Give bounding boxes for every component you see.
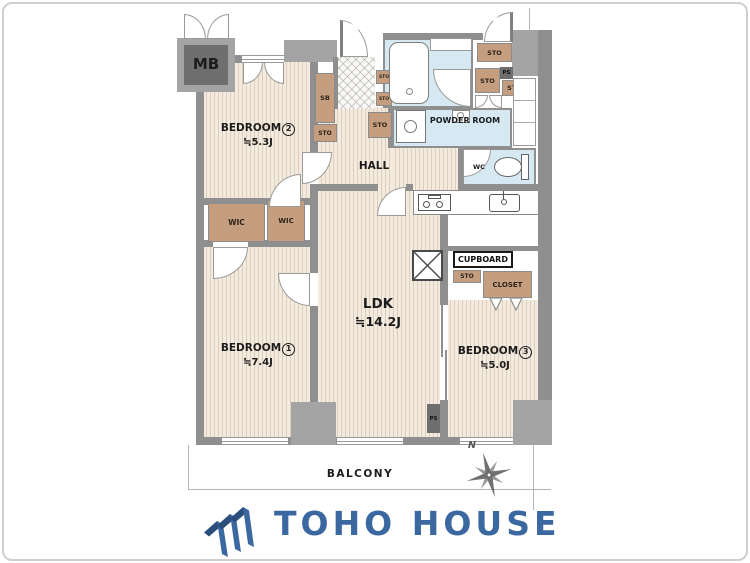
sb-label: SB bbox=[320, 94, 330, 102]
room-number: 1 bbox=[282, 343, 295, 356]
ps-label: PS bbox=[430, 416, 438, 422]
sto-label: STO bbox=[373, 121, 388, 129]
hall-label: HALL bbox=[346, 160, 402, 174]
wall bbox=[318, 184, 378, 191]
closet: CLOSET bbox=[483, 271, 532, 298]
room-number: 3 bbox=[519, 346, 532, 359]
toho-house-logo-icon bbox=[203, 499, 267, 559]
storage-box: STO bbox=[475, 68, 500, 93]
storage-box: STO bbox=[453, 270, 481, 283]
sto-label: STO bbox=[318, 130, 332, 137]
burner-icon bbox=[423, 201, 430, 208]
balcony-label: BALCONY bbox=[300, 468, 420, 482]
wall bbox=[284, 40, 337, 62]
mb-label: MB bbox=[184, 55, 228, 75]
sto-label: STO bbox=[460, 273, 474, 280]
washer-drum-icon bbox=[404, 120, 417, 133]
window bbox=[337, 437, 403, 445]
balcony-line bbox=[188, 445, 189, 489]
pillar bbox=[291, 402, 336, 445]
wic-box: WIC bbox=[208, 203, 265, 242]
folding-door-icon bbox=[489, 297, 503, 311]
folding-door-icon bbox=[509, 297, 523, 311]
shelf-line bbox=[514, 122, 535, 123]
entrance-door-arc bbox=[484, 12, 513, 42]
ldk-name: LDK bbox=[330, 296, 426, 314]
faucet-stem bbox=[503, 191, 504, 199]
sto-label: STO bbox=[379, 75, 389, 80]
wall bbox=[458, 148, 462, 184]
mb-door-arc bbox=[184, 14, 206, 39]
ldk-label: LDK ≒14.2J bbox=[330, 296, 426, 330]
wall bbox=[406, 184, 413, 191]
entrance-tile bbox=[337, 57, 375, 109]
storage-box: STO bbox=[313, 124, 337, 142]
boundary-line bbox=[529, 8, 530, 32]
toilet-icon bbox=[494, 157, 522, 177]
floorplan-canvas: MB WIC WIC SB STO STO STO STO STO STO ST… bbox=[0, 0, 750, 563]
powder-room-label: POWDER ROOM bbox=[428, 116, 502, 126]
faucet-icon bbox=[501, 199, 507, 205]
ps-label: PS bbox=[503, 70, 511, 76]
cupboard: CUPBOARD bbox=[453, 251, 513, 268]
closet-label: CLOSET bbox=[493, 281, 523, 289]
powder-door-arc bbox=[489, 95, 502, 108]
shoe-box: SB bbox=[315, 73, 335, 123]
room-number: 2 bbox=[282, 123, 295, 136]
toilet-tank-icon bbox=[521, 154, 529, 180]
pillar bbox=[513, 400, 552, 445]
sto-label: STO bbox=[480, 77, 495, 85]
wic-label: WIC bbox=[228, 218, 245, 227]
bathtub-drain-icon bbox=[406, 88, 413, 95]
linen-cabinet-icon bbox=[513, 78, 536, 146]
bedroom1-name: BEDROOM1 bbox=[206, 342, 310, 356]
pipe-space: PS bbox=[427, 404, 440, 433]
bedroom2-size: ≒5.3J bbox=[206, 136, 310, 149]
shaft-x-icon bbox=[412, 250, 443, 281]
mb-door-arc bbox=[207, 14, 229, 39]
powder-door-arc bbox=[475, 95, 488, 108]
wic-label: WIC bbox=[278, 217, 293, 225]
door-opening bbox=[310, 273, 318, 306]
wall bbox=[196, 55, 204, 443]
wc-label: WC bbox=[468, 163, 490, 171]
sto-label: STO bbox=[379, 97, 389, 102]
entrance-door-arc bbox=[340, 20, 368, 57]
wall bbox=[310, 184, 318, 198]
sto-label: STO bbox=[487, 49, 502, 57]
bedroom3-size: ≒5.0J bbox=[443, 359, 547, 372]
window bbox=[222, 437, 288, 445]
cupboard-label: CUPBOARD bbox=[458, 255, 508, 264]
bedroom3-name: BEDROOM3 bbox=[443, 345, 547, 359]
bedroom2-label: BEDROOM2 ≒5.3J bbox=[206, 122, 310, 149]
hall-floor-lower bbox=[392, 148, 462, 190]
wall bbox=[538, 30, 552, 443]
balcony-line bbox=[533, 445, 534, 510]
toho-house-logo-text: TOHO HOUSE bbox=[274, 504, 560, 543]
bath-counter-icon bbox=[430, 38, 472, 51]
shelf-line bbox=[514, 100, 535, 101]
bedroom3-label: BEDROOM3 ≒5.0J bbox=[443, 345, 547, 372]
storage-box: STO bbox=[368, 112, 392, 138]
bedroom1-size: ≒7.4J bbox=[206, 356, 310, 369]
compass-north-label: N bbox=[464, 440, 480, 452]
bedroom2-name: BEDROOM2 bbox=[206, 122, 310, 136]
burner-icon bbox=[436, 201, 443, 208]
stove-panel bbox=[428, 195, 441, 199]
ldk-size: ≒14.2J bbox=[330, 314, 426, 330]
storage-box: STO bbox=[477, 43, 512, 62]
bedroom1-label: BEDROOM1 ≒7.4J bbox=[206, 342, 310, 369]
pipe-space: PS bbox=[500, 67, 513, 79]
compass-icon bbox=[461, 447, 517, 503]
